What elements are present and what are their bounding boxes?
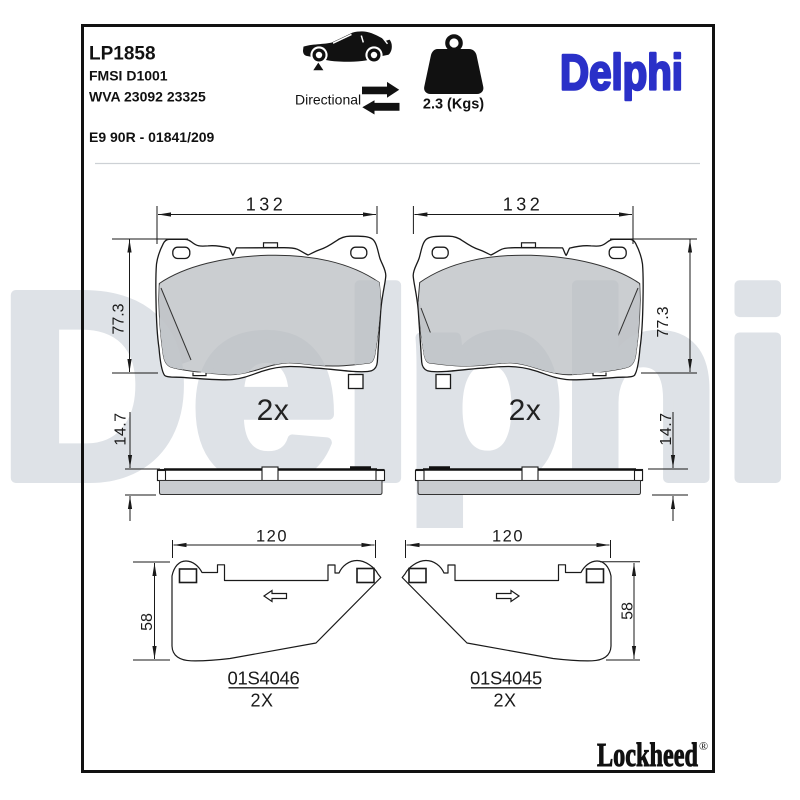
svg-text:2x: 2x (257, 394, 290, 427)
svg-text:2X: 2X (250, 691, 273, 711)
svg-text:2X: 2X (493, 691, 516, 711)
svg-text:120: 120 (492, 528, 524, 546)
svg-text:LP1858: LP1858 (89, 44, 156, 65)
svg-text:Delphi: Delphi (560, 45, 683, 101)
svg-text:120: 120 (256, 528, 288, 546)
svg-text:14.7: 14.7 (658, 412, 675, 445)
svg-text:2x: 2x (509, 394, 542, 427)
svg-text:14.7: 14.7 (113, 412, 130, 445)
svg-text:WVA 23092 23325: WVA 23092 23325 (89, 89, 206, 105)
svg-text:®: ® (699, 739, 708, 753)
svg-text:132: 132 (246, 195, 287, 215)
svg-text:Lockheed: Lockheed (597, 737, 698, 774)
svg-text:Delphi: Delphi (0, 238, 795, 536)
svg-text:77.3: 77.3 (111, 303, 128, 334)
svg-text:77.3: 77.3 (655, 306, 672, 337)
svg-text:132: 132 (503, 195, 544, 215)
svg-text:01S4046: 01S4046 (228, 668, 300, 689)
svg-text:E9 90R - 01841/209: E9 90R - 01841/209 (89, 129, 215, 145)
svg-text:FMSI D1001: FMSI D1001 (89, 68, 168, 84)
svg-text:58: 58 (139, 613, 156, 631)
svg-text:Directional: Directional (295, 92, 361, 108)
svg-text:2.3 (Kgs): 2.3 (Kgs) (423, 97, 484, 113)
svg-text:58: 58 (620, 602, 637, 620)
svg-text:01S4045: 01S4045 (470, 668, 542, 689)
